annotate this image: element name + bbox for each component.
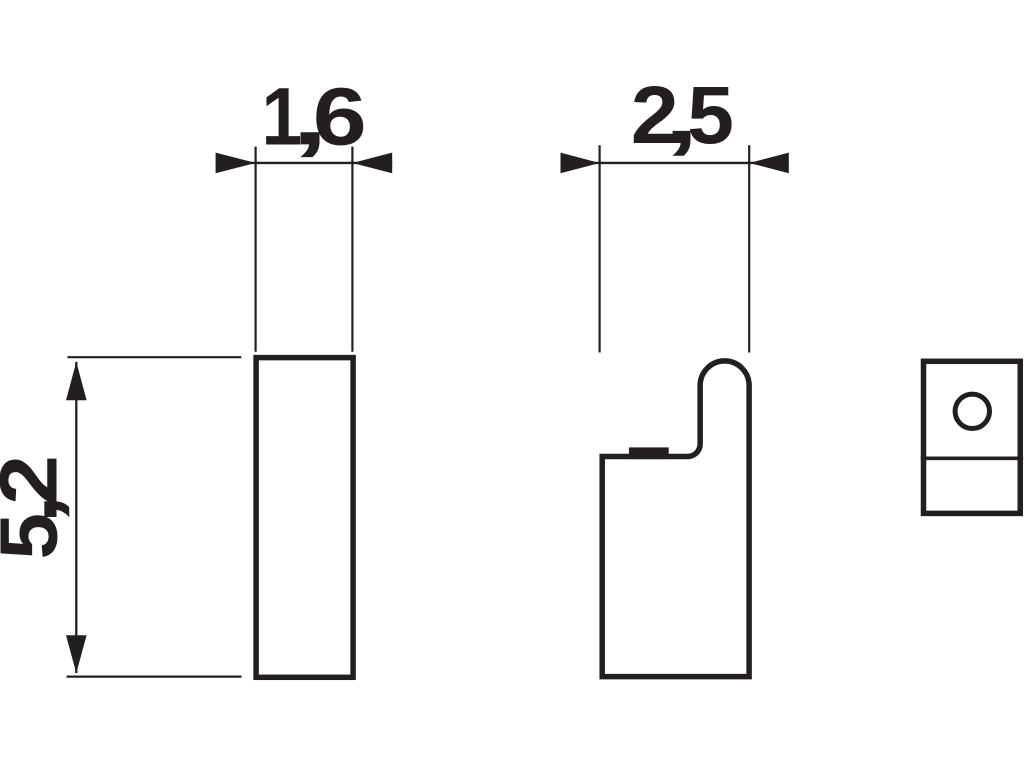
- svg-text:5: 5: [687, 69, 734, 161]
- svg-text:2: 2: [0, 455, 75, 505]
- svg-text:6: 6: [313, 71, 367, 162]
